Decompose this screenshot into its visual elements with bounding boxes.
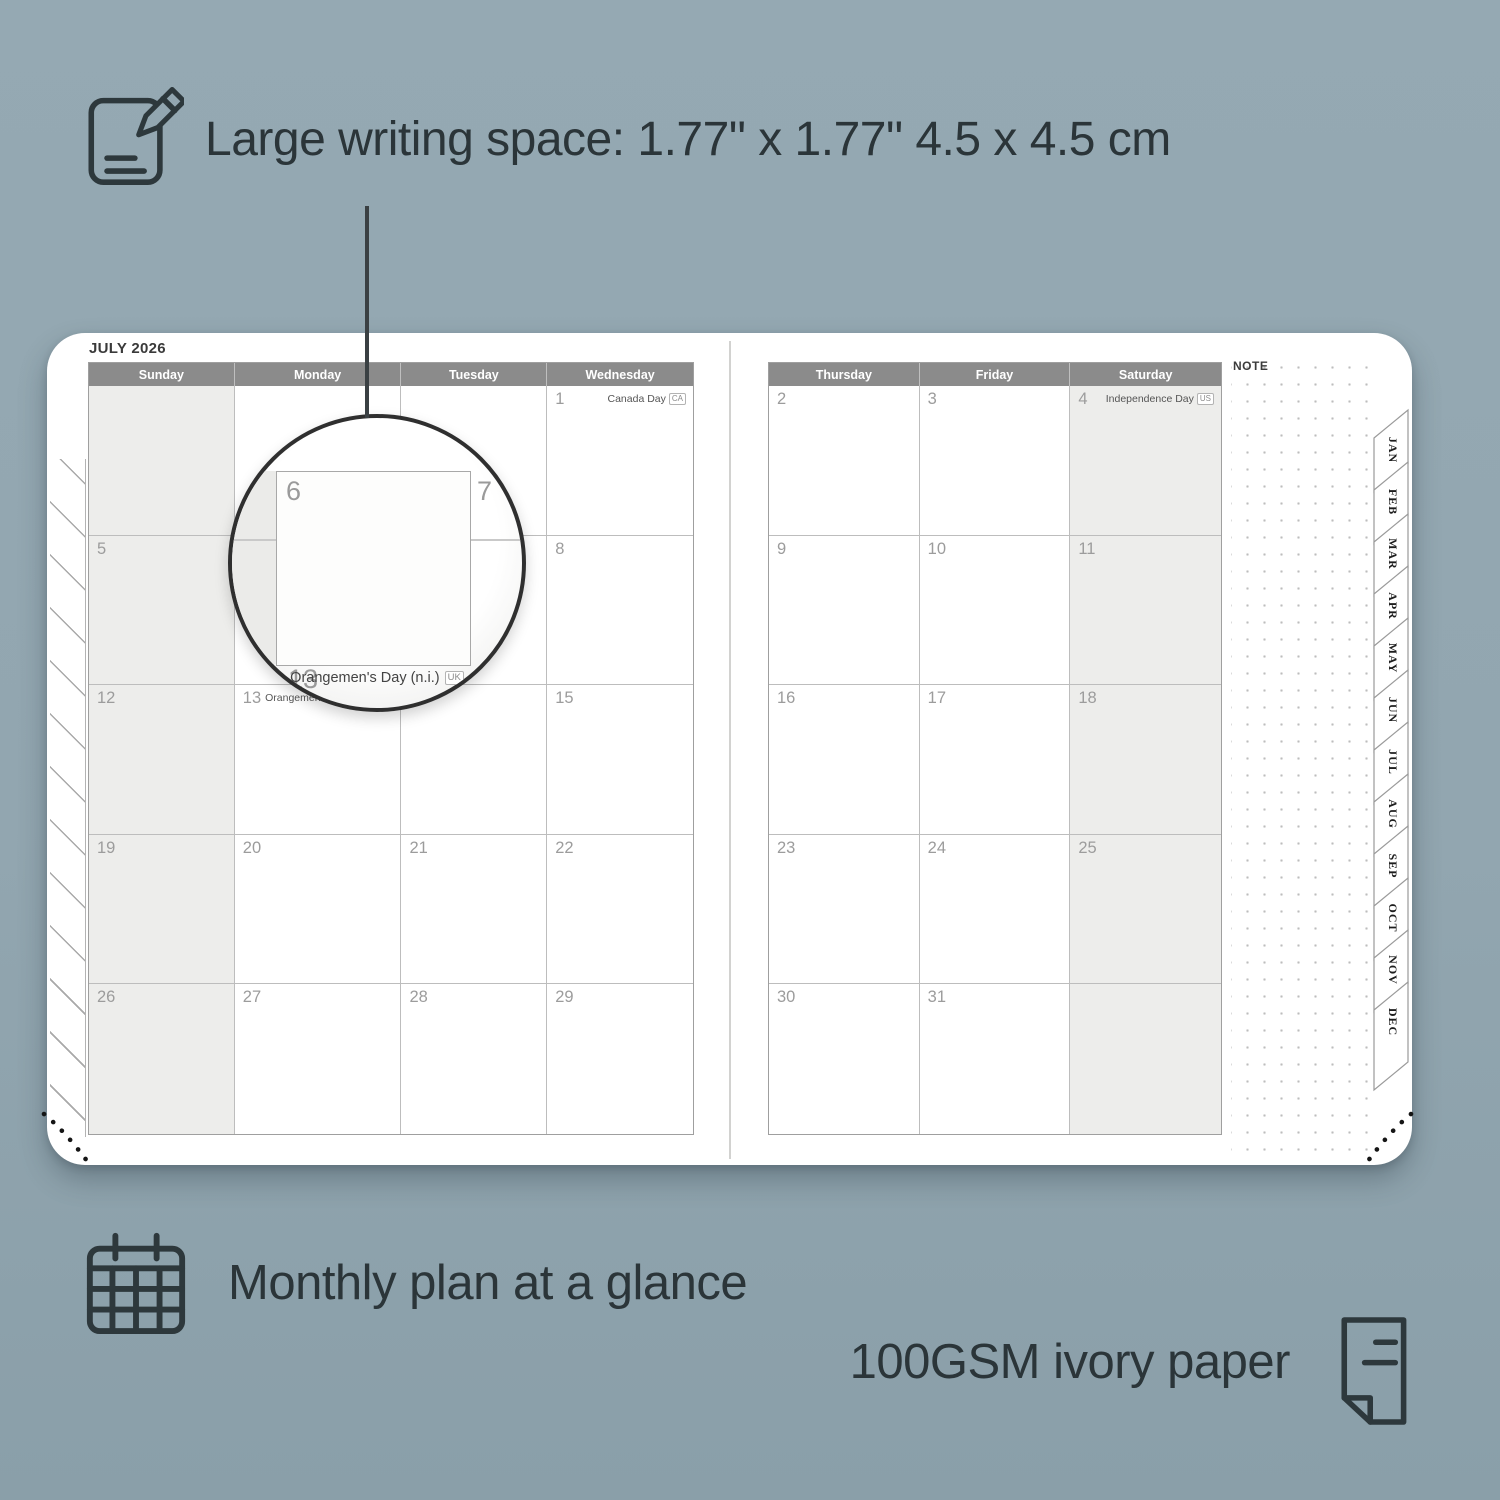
month-tab: OCT xyxy=(1386,903,1400,932)
calendar-icon xyxy=(82,1230,190,1336)
month-tab: SEP xyxy=(1386,853,1400,878)
month-tabs: JANFEBMARAPRMAYJUNJULAUGSEPOCTNOVDEC xyxy=(1374,410,1412,1130)
country-badge: CA xyxy=(669,393,686,405)
paper-icon xyxy=(1322,1310,1424,1432)
day-number: 2 xyxy=(777,391,786,408)
paper-caption: 100GSM ivory paper xyxy=(770,1334,1290,1390)
day-header: Wednesday xyxy=(547,363,693,386)
day-cell xyxy=(1070,984,1221,1134)
day-cell: 21 xyxy=(401,835,547,985)
note-label: NOTE xyxy=(1233,359,1268,373)
day-cell: 3 xyxy=(920,386,1071,536)
month-tab: AUG xyxy=(1386,799,1400,829)
day-cell: 2 xyxy=(769,386,920,536)
day-number: 19 xyxy=(97,840,115,857)
calendar-grid-right: ThursdayFridaySaturday234Independence Da… xyxy=(768,362,1222,1135)
day-number: 10 xyxy=(928,541,946,558)
month-tab: MAY xyxy=(1386,643,1400,674)
row-line xyxy=(232,539,276,541)
day-header: Saturday xyxy=(1070,363,1221,386)
magnified-day-number: 6 xyxy=(286,478,301,505)
product-image: Large writing space: 1.77" x 1.77" 4.5 x… xyxy=(0,0,1500,1500)
day-cell: 22 xyxy=(547,835,693,985)
day-number: 22 xyxy=(555,840,573,857)
month-title: JULY 2026 xyxy=(89,340,166,357)
day-number: 12 xyxy=(97,690,115,707)
day-number: 16 xyxy=(777,690,795,707)
day-cell: 16 xyxy=(769,685,920,835)
day-cell: 19 xyxy=(89,835,235,985)
month-tab: JUN xyxy=(1386,697,1400,723)
day-number: 18 xyxy=(1078,690,1096,707)
magnified-holiday-label: Orangemen's Day (n.i.) UK xyxy=(232,670,522,686)
day-cell: 25 xyxy=(1070,835,1221,985)
day-number: 3 xyxy=(928,391,937,408)
day-number: 26 xyxy=(97,989,115,1006)
shaded-column-sliver xyxy=(232,471,276,664)
day-cell: 1Canada Day CA xyxy=(547,386,693,536)
day-cell: 23 xyxy=(769,835,920,985)
day-cell: 15 xyxy=(547,685,693,835)
day-cell: 17 xyxy=(920,685,1071,835)
callout-pointer-line xyxy=(365,206,369,418)
day-number: 21 xyxy=(409,840,427,857)
day-header: Sunday xyxy=(89,363,235,386)
day-number: 24 xyxy=(928,840,946,857)
day-header: Monday xyxy=(235,363,402,386)
page-spine xyxy=(729,341,731,1159)
row-line xyxy=(469,539,522,541)
day-cell: 18 xyxy=(1070,685,1221,835)
previous-tabs-edge xyxy=(50,459,86,1137)
day-cell: 27 xyxy=(235,984,402,1134)
day-number: 5 xyxy=(97,541,106,558)
month-tab: JUL xyxy=(1386,749,1400,775)
day-number: 30 xyxy=(777,989,795,1006)
day-cell: 20 xyxy=(235,835,402,985)
monthly-plan-caption: Monthly plan at a glance xyxy=(228,1255,747,1311)
writing-note-pencil-icon xyxy=(82,75,184,193)
day-cell: 11 xyxy=(1070,536,1221,686)
day-number: 9 xyxy=(777,541,786,558)
day-cell: 10 xyxy=(920,536,1071,686)
day-cell: 4Independence Day US xyxy=(1070,386,1221,536)
day-number: 25 xyxy=(1078,840,1096,857)
country-badge: US xyxy=(1197,393,1214,405)
day-number: 4 xyxy=(1078,391,1087,408)
magnified-writing-cell xyxy=(276,471,471,666)
day-cell: 29 xyxy=(547,984,693,1134)
day-number: 17 xyxy=(928,690,946,707)
magnifier-circle: 6 7 13 Orangemen's Day (n.i.) UK xyxy=(228,414,526,712)
day-cell: 14 xyxy=(401,685,547,835)
day-cell: 31 xyxy=(920,984,1071,1134)
day-cell: 26 xyxy=(89,984,235,1134)
day-number: 1 xyxy=(555,391,564,408)
day-number: 23 xyxy=(777,840,795,857)
day-number: 28 xyxy=(409,989,427,1006)
day-number: 27 xyxy=(243,989,261,1006)
day-cell: 24 xyxy=(920,835,1071,985)
day-cell: 12 xyxy=(89,685,235,835)
day-cell: 8 xyxy=(547,536,693,686)
day-cell: 9 xyxy=(769,536,920,686)
writing-space-caption: Large writing space: 1.77" x 1.77" 4.5 x… xyxy=(205,112,1171,167)
month-tab: DEC xyxy=(1386,1008,1400,1036)
day-cell: 28 xyxy=(401,984,547,1134)
month-tab: NOV xyxy=(1386,955,1400,985)
month-tab: FEB xyxy=(1386,489,1400,515)
day-header: Tuesday xyxy=(401,363,547,386)
day-number: 8 xyxy=(555,541,564,558)
holiday-label: Canada Day CA xyxy=(608,391,687,405)
day-number: 15 xyxy=(555,690,573,707)
month-tab: APR xyxy=(1386,592,1400,620)
day-header: Thursday xyxy=(769,363,920,386)
day-number: 13 xyxy=(243,690,261,707)
day-number: 31 xyxy=(928,989,946,1006)
month-tab: JAN xyxy=(1386,437,1400,463)
day-cell xyxy=(89,386,235,536)
month-tab: MAR xyxy=(1386,538,1400,570)
day-number: 11 xyxy=(1078,541,1095,558)
day-header: Friday xyxy=(920,363,1071,386)
note-dot-grid xyxy=(1231,366,1374,1151)
planner-spread: JULY 2026 SundayMondayTuesdayWednesday1C… xyxy=(47,333,1412,1165)
country-badge: UK xyxy=(445,671,464,685)
day-cell: 30 xyxy=(769,984,920,1134)
day-number: 29 xyxy=(555,989,573,1006)
day-number: 20 xyxy=(243,840,261,857)
holiday-label: Independence Day US xyxy=(1106,391,1214,405)
magnified-day-number: 7 xyxy=(477,478,492,505)
day-cell: 5 xyxy=(89,536,235,686)
